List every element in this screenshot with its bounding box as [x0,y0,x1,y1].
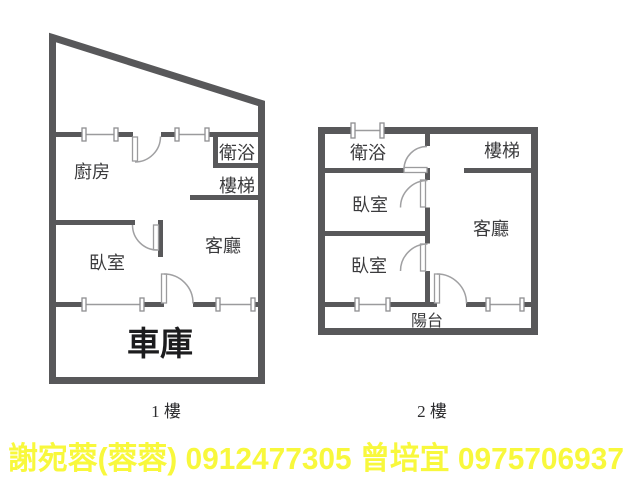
agent-contact-line: 謝宛蓉(蓉蓉) 0912477305 曾培宜 0975706937 [8,441,624,476]
window-end-tick [355,298,359,311]
floor1-caption: 1 樓 [151,402,181,421]
door-swing-arc [437,274,467,304]
door-leaf [435,274,440,303]
room-label-garage: 車庫 [127,325,193,362]
room-label-living: 客廳 [473,219,509,239]
room-label-kitchen: 廚房 [74,161,110,182]
room-label-stairs: 樓梯 [219,176,255,196]
window-end-tick [205,128,209,141]
room-label-stairs: 樓梯 [484,141,520,161]
floorplan-image: 廚房 衛浴 樓梯 臥室 客廳 車庫 1 樓 [0,0,632,480]
door-leaf [154,225,159,250]
room-label-bath: 衛浴 [219,143,255,163]
floor2-plan: 衛浴 樓梯 臥室 客廳 臥室 陽台 2 樓 [322,123,535,421]
window-end-tick [386,298,390,311]
door-leaf [421,180,426,207]
door-leaf [421,244,426,271]
window-end-tick [114,128,118,141]
window-end-tick [216,298,220,311]
window-end-tick [380,123,384,138]
window-end-tick [486,298,490,311]
window-end-tick [82,128,86,141]
room-label-bedroom1: 臥室 [352,195,388,215]
door-leaf [404,168,427,173]
window-end-tick [351,123,355,138]
window-end-tick [82,298,86,311]
room-label-living: 客廳 [205,236,241,256]
floor1-plan: 廚房 衛浴 樓梯 臥室 客廳 車庫 1 樓 [53,38,262,422]
door-leaf [133,137,138,161]
window-end-tick [520,298,524,311]
door-swing-arc [404,147,427,170]
window-end-tick [140,298,144,311]
window-end-tick [175,128,179,141]
floorplan-svg: 廚房 衛浴 樓梯 臥室 客廳 車庫 1 樓 [0,0,632,480]
room-label-bath: 衛浴 [350,143,386,163]
window-end-tick [251,298,255,311]
room-label-bedroom: 臥室 [89,253,125,273]
floor2-caption: 2 樓 [417,402,447,421]
room-label-balcony: 陽台 [411,312,443,330]
room-label-bedroom2: 臥室 [351,256,387,276]
door-leaf [162,274,167,303]
